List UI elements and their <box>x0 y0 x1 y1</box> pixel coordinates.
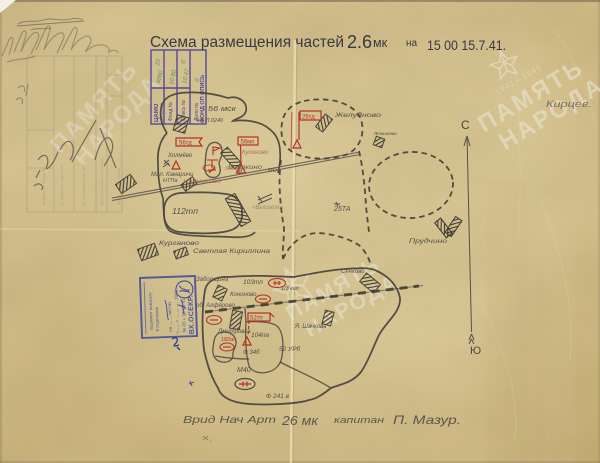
svg-text:104па: 104па <box>251 332 269 339</box>
svg-text:Бокшино: Бокшино <box>225 166 246 172</box>
svg-text:«Высокое»: «Высокое» <box>252 205 284 211</box>
svg-text:Дело по описи — листов: Дело по описи — листов <box>99 159 104 205</box>
svg-text:56тд: 56тд <box>179 141 192 147</box>
svg-text:Ю: Ю <box>470 345 481 357</box>
svg-text:26тд: 26тд <box>302 115 315 121</box>
svg-text:182ап: 182ап <box>221 337 236 343</box>
svg-text:Желудново: Желудново <box>334 111 382 119</box>
svg-text:Фонд №: Фонд № <box>168 102 174 121</box>
svg-text:Заборщина: Заборщина <box>196 277 229 283</box>
svg-text:б) Уничтожено по акту: б) Уничтожено по акту <box>81 164 86 205</box>
svg-text:Светлая Кириллина: Светлая Кириллина <box>193 248 271 255</box>
svg-text:103тп: 103тп <box>243 279 263 286</box>
svg-text:112тп: 112тп <box>172 207 199 216</box>
svg-text:56мп: 56мп <box>241 140 255 146</box>
svg-text:25ТА: 25ТА <box>333 206 351 213</box>
svg-text:МО: МО <box>268 168 278 174</box>
svg-text:Кононово: Кононово <box>230 292 257 298</box>
svg-text:26 мк: 26 мк <box>281 414 319 428</box>
svg-text:Схема размещения частей: Схема размещения частей <box>150 34 344 51</box>
svg-text:Курганово: Курганово <box>159 240 200 247</box>
svg-text:2.6: 2.6 <box>347 32 372 52</box>
svg-text:15 00 15.7.41.: 15 00 15.7.41. <box>427 38 506 53</box>
svg-text:1/3 кап: 1/3 кап <box>281 286 299 292</box>
svg-text:Прудчино: Прудчино <box>409 238 448 245</box>
svg-text:Дмитровка: Дмитровка <box>217 329 251 335</box>
svg-text:Кирцев.: Кирцев. <box>546 99 592 110</box>
svg-text:52 УРб: 52 УРб <box>279 345 301 353</box>
svg-text:ч/В.Л.0240: ч/В.Л.0240 <box>196 118 224 124</box>
svg-text:капитан: капитан <box>334 415 385 426</box>
svg-text:НТПа: НТПа <box>163 178 177 184</box>
svg-text:Кулиново: Кулиново <box>242 150 269 156</box>
svg-text:Чарниково: Чарниково <box>183 179 222 185</box>
svg-text:Сенково: Сенково <box>341 269 365 275</box>
svg-text:52тп: 52тп <box>250 316 263 322</box>
svg-text:Ф 34б: Ф 34б <box>243 350 260 356</box>
svg-text:об. Алфёрово: об. Алфёрово <box>196 303 235 309</box>
svg-text:М40: М40 <box>237 367 251 374</box>
svg-text:8 отделение: 8 отделение <box>154 306 160 331</box>
svg-text:Ф 241 в: Ф 241 в <box>266 393 290 400</box>
svg-text:Врид Нач Арт: Врид Нач Арт <box>183 414 276 426</box>
svg-text:а) Подшито в дело №: а) Подшито в дело № <box>59 165 64 205</box>
svg-text:мк: мк <box>373 36 388 50</box>
svg-text:на: на <box>406 38 418 49</box>
svg-text:ВХ.ОСЕКР.: ВХ.ОСЕКР. <box>188 295 196 334</box>
svg-text:Холмёво: Холмёво <box>167 153 193 159</box>
svg-text:П. Мазур.: П. Мазур. <box>393 413 461 427</box>
svg-text:Я. Шачкова: Я. Шачкова <box>294 324 327 330</box>
svg-text:56 мск: 56 мск <box>208 106 237 113</box>
svg-text:Ятнишево: Ятнишево <box>373 131 397 136</box>
svg-text:С: С <box>461 118 470 132</box>
